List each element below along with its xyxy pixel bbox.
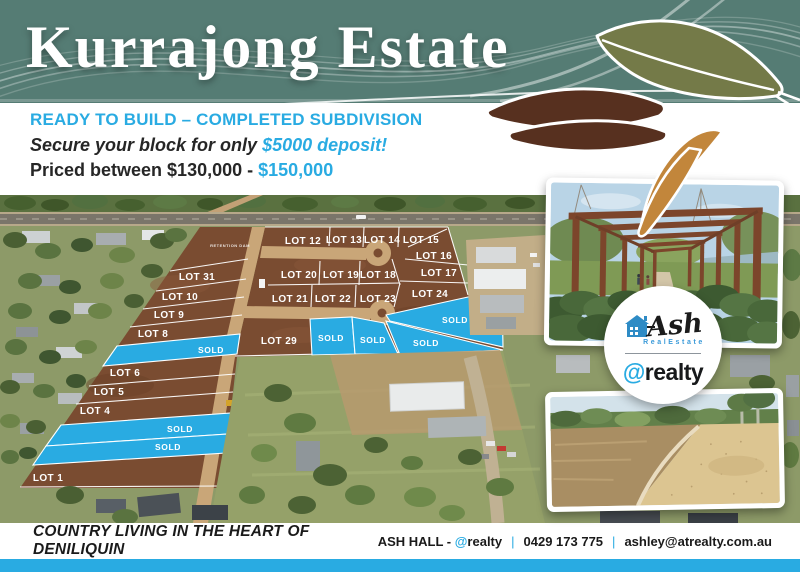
agent-brand-at: @ (455, 534, 468, 549)
lot-label-5: LOT 5 (94, 387, 124, 398)
sold-label-5: SOLD (360, 335, 386, 345)
separator: | (612, 534, 615, 549)
deposit-highlight: $5000 deposit! (262, 135, 387, 155)
lot-label-21: LOT 21 (272, 294, 308, 305)
lot-label-10: LOT 10 (162, 292, 198, 303)
river-beach-photo (545, 388, 785, 512)
lot-label-6: LOT 6 (110, 368, 140, 379)
agency-logo: Ash RealEstate @realty (604, 286, 722, 404)
lot-label-1: LOT 1 (33, 473, 63, 484)
lot-label-19: LOT 19 (323, 270, 359, 281)
deposit-prefix: Secure your block for only (30, 135, 262, 155)
email-address: ashley@atrealty.com.au (624, 534, 772, 549)
lot-label-31: LOT 31 (179, 272, 215, 283)
lot-label-20: LOT 20 (281, 270, 317, 281)
headline: READY TO BUILD – COMPLETED SUBDIVISION (30, 111, 422, 128)
sold-label-2: SOLD (167, 424, 193, 434)
intro-block: READY TO BUILD – COMPLETED SUBDIVISION S… (30, 111, 422, 179)
header-band: Kurrajong Estate (0, 0, 800, 103)
phone-number: 0429 173 775 (524, 534, 604, 549)
lot-label-18: LOT 18 (360, 270, 396, 281)
agent-brand: realty (467, 534, 502, 549)
contact-line: ASH HALL - @realty | 0429 173 775 | ashl… (378, 534, 772, 549)
vehicle (259, 279, 265, 288)
bottom-accent-bar (0, 559, 800, 572)
vehicle (356, 215, 366, 219)
deposit-line: Secure your block for only $5000 deposit… (30, 136, 422, 154)
lot-label-13: LOT 13 (326, 235, 362, 246)
lot-label-8: LOT 8 (138, 329, 168, 340)
lot-label-15: LOT 15 (403, 235, 439, 246)
lot-label-4: LOT 4 (80, 406, 110, 417)
lot-label-14: LOT 14 (364, 235, 400, 246)
atrealty-wordmark: @realty (623, 359, 703, 386)
lot-label-29: LOT 29 (261, 336, 297, 347)
at-symbol: @ (623, 359, 645, 385)
sold-label-6: SOLD (413, 338, 439, 348)
sold-label-7: SOLD (442, 315, 468, 325)
price-prefix: Priced between $130,000 - (30, 160, 258, 180)
lot-label-24: LOT 24 (412, 289, 448, 300)
lot-label-16: LOT 16 (416, 251, 452, 262)
page-title: Kurrajong Estate (26, 14, 510, 80)
lot-label-23: LOT 23 (360, 294, 396, 305)
retention-dam-label: RETENTION DAM (210, 243, 250, 248)
separator: | (511, 534, 514, 549)
footer-bar: COUNTRY LIVING IN THE HEART OF DENILIQUI… (0, 523, 800, 559)
lot-label-17: LOT 17 (421, 268, 457, 279)
lot-label-12: LOT 12 (285, 236, 321, 247)
sold-label-1: SOLD (198, 345, 224, 355)
price-line: Priced between $130,000 - $150,000 (30, 161, 422, 179)
flyer-page: Kurrajong Estate READY TO BUILD – COMPLE… (0, 0, 800, 572)
sold-label-3: SOLD (155, 442, 181, 452)
price-highlight: $150,000 (258, 160, 333, 180)
brand-name: realty (645, 359, 703, 385)
tagline: COUNTRY LIVING IN THE HEART OF DENILIQUI… (33, 523, 378, 559)
lot-label-22: LOT 22 (315, 294, 351, 305)
bottom-paddocks (210, 350, 545, 523)
sold-label-4: SOLD (318, 333, 344, 343)
brand-script: Ash (646, 308, 704, 344)
agent-name: ASH HALL - @realty (378, 534, 502, 549)
lot-label-9: LOT 9 (154, 310, 184, 321)
logo-divider (625, 353, 701, 354)
